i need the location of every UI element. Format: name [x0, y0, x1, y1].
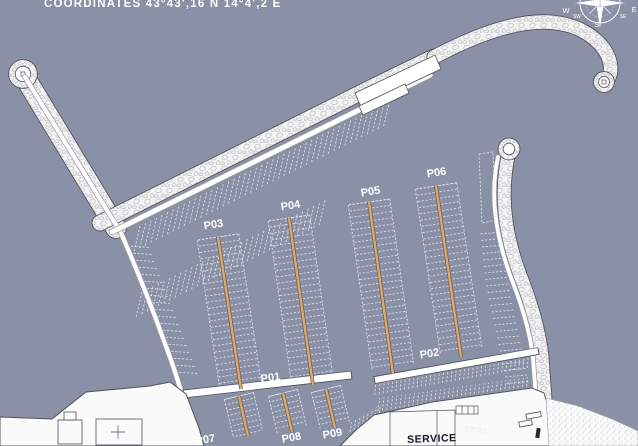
compass-label-w: W [562, 6, 570, 15]
building-1-annex [64, 412, 76, 420]
service-label: SERVICE [407, 432, 457, 446]
compass-label-e: E [631, 5, 636, 14]
head-platform [599, 77, 610, 88]
building-1 [58, 420, 82, 444]
marina-plan-svg: P01 P02 P03 P04 P05 P06 P07 P08 P09 SERV… [0, 0, 638, 446]
pier-label-p07: P07 [195, 432, 216, 446]
marina-plan: P01 P02 P03 P04 P05 P06 P07 P08 P09 SERV… [0, 0, 638, 446]
compass-label-s: S [594, 20, 599, 29]
compass-label-sw: SW [573, 14, 581, 20]
head-platform [503, 143, 515, 155]
compass-label-se: SE [620, 14, 627, 20]
coordinates-title: COORDINATES 43°43',16 N 14°4',2 E [44, 0, 282, 10]
